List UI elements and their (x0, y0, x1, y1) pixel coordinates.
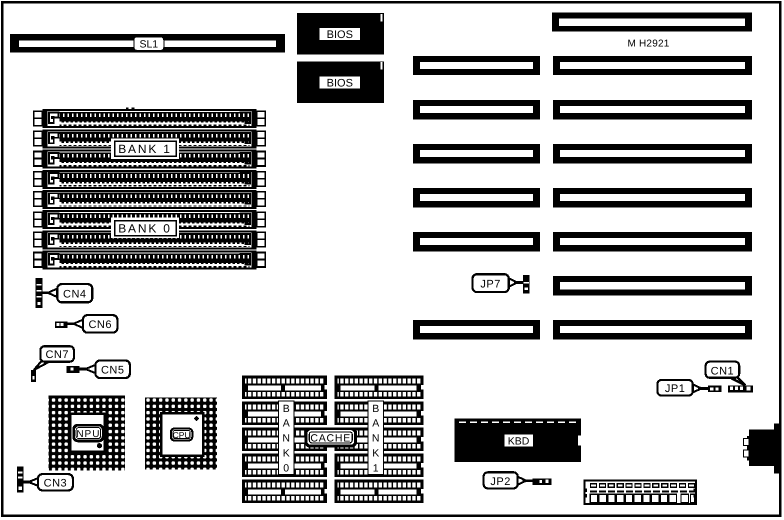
svg-text:BANK 0: BANK 0 (118, 221, 172, 235)
svg-text:CACHE: CACHE (310, 433, 351, 445)
svg-text:CN5: CN5 (101, 364, 125, 376)
svg-text:BIOS: BIOS (327, 29, 353, 41)
svg-text:CN3: CN3 (44, 478, 68, 490)
svg-text:B: B (372, 403, 379, 415)
svg-text:M H2921: M H2921 (628, 38, 670, 49)
svg-text:CN6: CN6 (88, 319, 112, 331)
svg-text:N: N (282, 432, 290, 444)
svg-text:JP7: JP7 (480, 279, 500, 291)
svg-text:BANK 1: BANK 1 (118, 142, 172, 156)
svg-text:1: 1 (373, 462, 379, 474)
svg-text:A: A (283, 417, 290, 429)
svg-text:A: A (372, 417, 379, 429)
svg-text:NPU: NPU (76, 429, 100, 440)
svg-text:SL1: SL1 (139, 38, 158, 50)
svg-text:K: K (283, 447, 290, 459)
svg-text:JP1: JP1 (665, 383, 685, 395)
svg-text:CN7: CN7 (45, 349, 69, 361)
svg-text:JP2: JP2 (490, 476, 510, 488)
svg-text:CPU: CPU (173, 430, 191, 440)
svg-text:CN1: CN1 (711, 365, 735, 377)
svg-text:B: B (283, 403, 290, 415)
svg-text:K: K (372, 447, 379, 459)
svg-text:N: N (372, 432, 380, 444)
svg-text:0: 0 (283, 462, 289, 474)
svg-text:KBD: KBD (508, 436, 530, 448)
svg-text:BIOS: BIOS (327, 77, 353, 89)
svg-text:CN4: CN4 (63, 288, 87, 300)
